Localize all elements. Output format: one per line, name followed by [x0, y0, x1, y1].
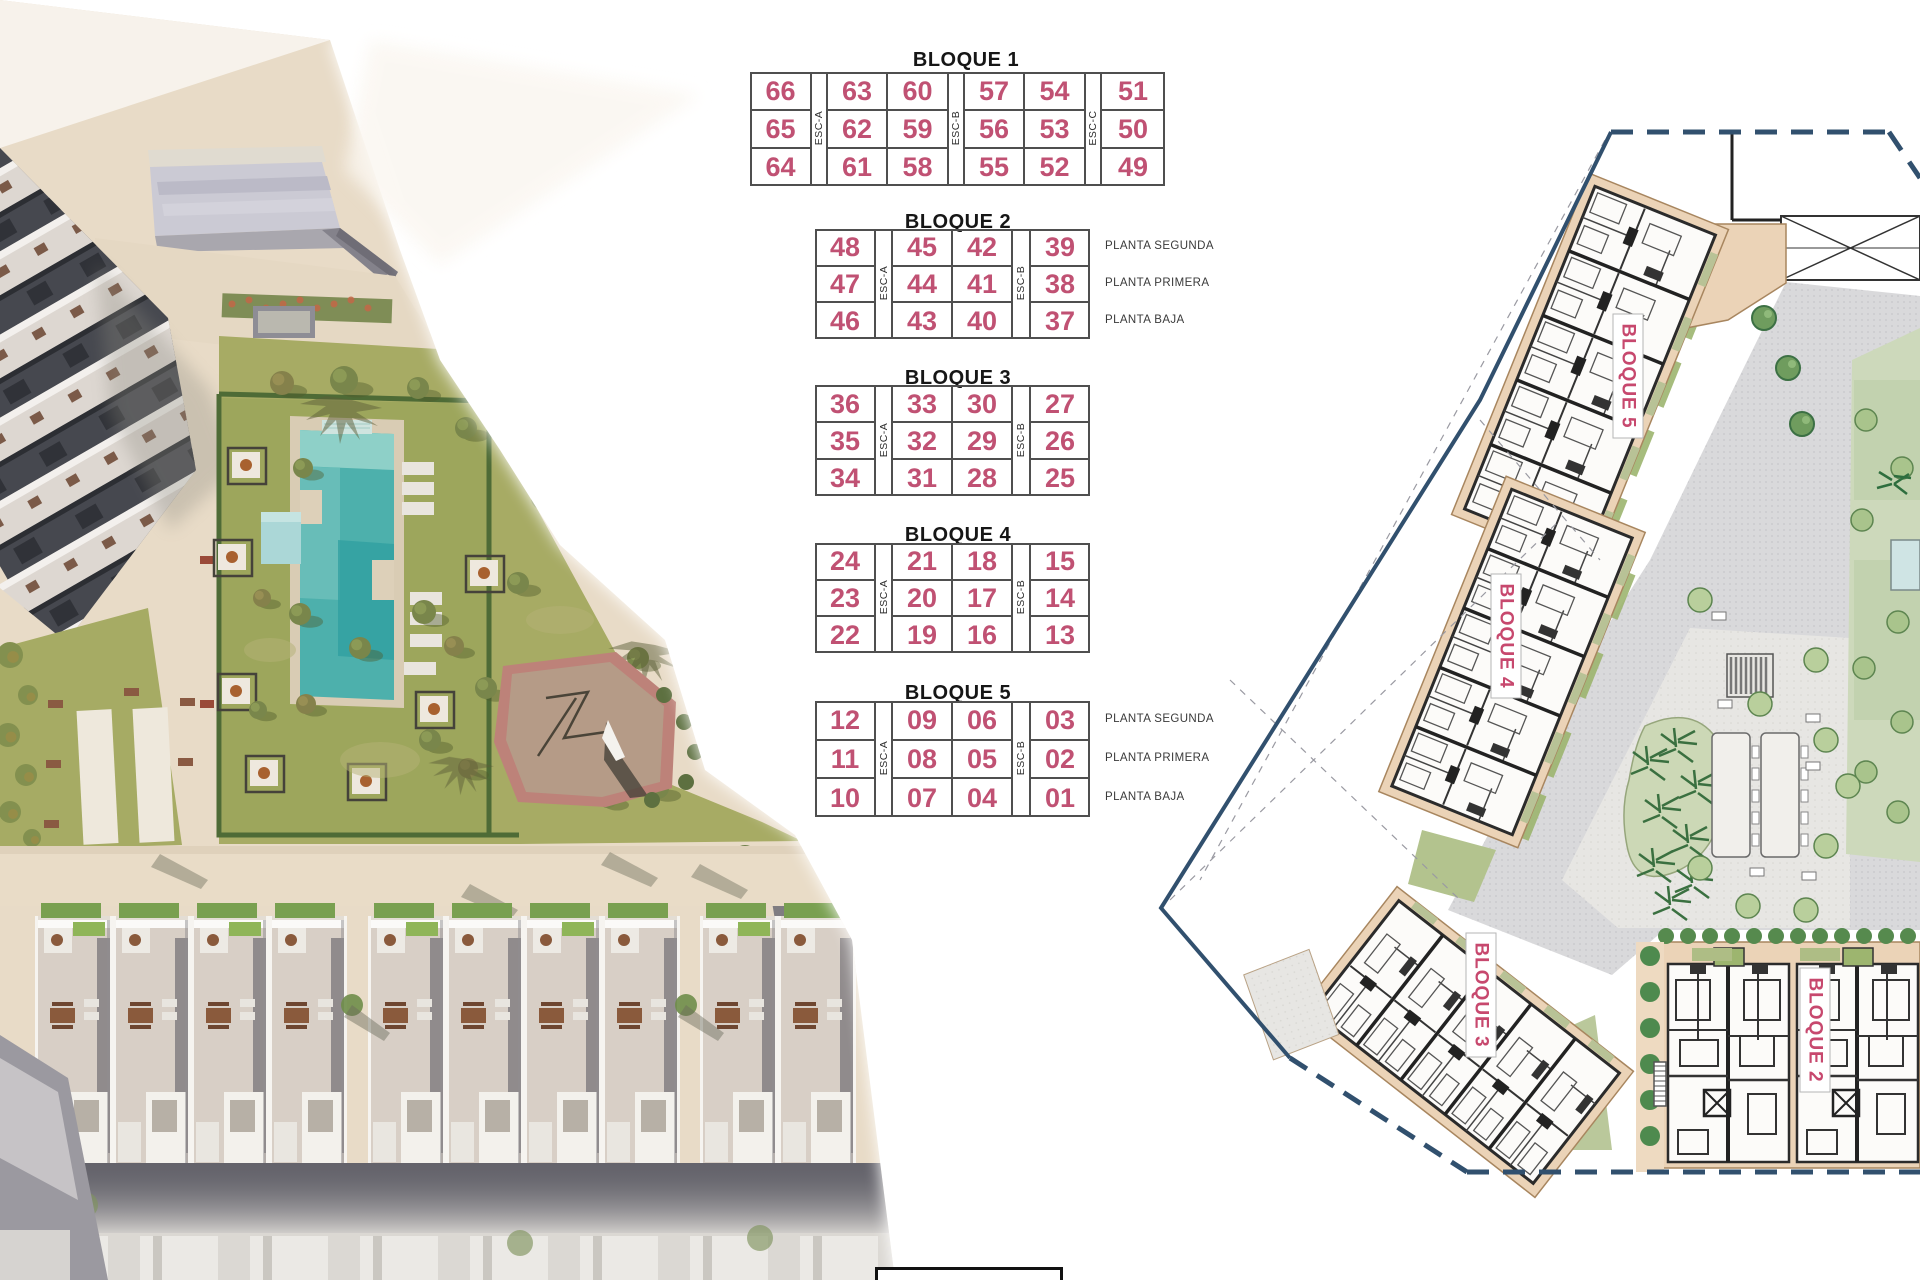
- svg-text:BLOQUE 3: BLOQUE 3: [1471, 942, 1492, 1047]
- svg-text:BLOQUE 5: BLOQUE 5: [1618, 323, 1639, 428]
- svg-text:BLOQUE 2: BLOQUE 2: [1805, 977, 1826, 1082]
- svg-text:BLOQUE 4: BLOQUE 4: [1496, 583, 1517, 688]
